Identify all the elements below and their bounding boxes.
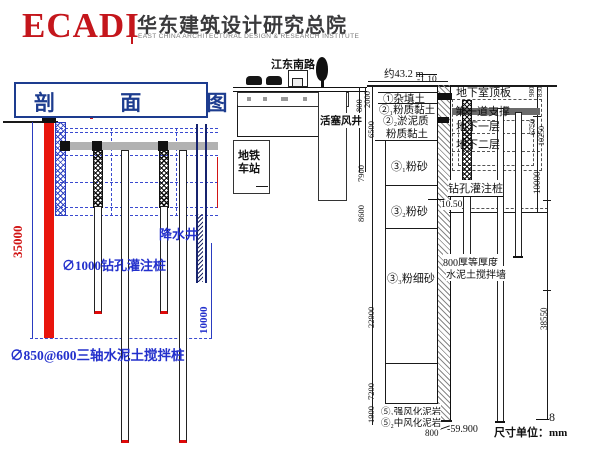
unit-note-label: 尺寸单位： xyxy=(494,427,549,439)
structure-dashed-line xyxy=(55,128,218,129)
road-name-label: 江东南路 xyxy=(271,56,315,72)
structure-dashed-line xyxy=(55,215,218,216)
mixing-pile-label: ∅850@600三轴水泥土搅拌桩 xyxy=(10,344,185,364)
elevation-strut: 10.50 xyxy=(441,200,462,210)
section-title: 剖 面 图 xyxy=(34,87,258,117)
bored-pile-hatched xyxy=(159,150,169,208)
dim-tick xyxy=(533,212,541,213)
right-dim-6750: 6750 xyxy=(528,103,537,135)
dim-text-10000-left: 10000 xyxy=(198,286,210,334)
pile-head-block xyxy=(158,141,168,151)
basement-roof-label: 地下室顶板 xyxy=(456,84,511,100)
slab-detail-square xyxy=(263,97,267,101)
section-title-box: 剖 面 图 xyxy=(14,82,208,118)
strut-end-block-geo xyxy=(437,117,449,123)
elevation-bottom: -59.900 xyxy=(447,424,478,435)
layer-label-5b: ⑤₂中风化泥岩 xyxy=(381,415,441,429)
deep-pile xyxy=(121,150,129,443)
soil-column-left-edge xyxy=(385,140,386,420)
tree-icon xyxy=(316,57,328,81)
car-icon xyxy=(266,76,282,85)
geo-dim-7900: 7900 xyxy=(356,148,366,182)
pile-toe-cap xyxy=(513,256,523,258)
dim-tick xyxy=(543,200,551,201)
basement-b1-label: 地下一层 xyxy=(456,118,500,134)
ecadi-logo: ECADI xyxy=(22,6,140,46)
layer-label-3b: ③₂粉砂 xyxy=(391,203,428,219)
dim-corner-mark xyxy=(536,419,549,420)
structure-dashed-line xyxy=(55,155,218,156)
layer-boundary xyxy=(385,185,437,186)
basement-b2-label: 地下二层 xyxy=(456,136,500,152)
geo-dim-800: 800 xyxy=(354,93,364,112)
right-dim-830: 830 xyxy=(536,80,544,97)
org-name-en: EAST CHINA ARCHITECTURAL DESIGN & RESEAR… xyxy=(138,33,359,40)
wall-thickness-800: 800 xyxy=(425,428,439,438)
geo-dim-1900: 1900 xyxy=(366,399,376,423)
structure-dashed-line xyxy=(55,132,218,133)
layer-label-3c: ③₃粉细砂 xyxy=(387,270,435,286)
geo-dim-22900: 22900 xyxy=(366,288,376,328)
slab-detail-square xyxy=(303,97,307,101)
right-dim-line-outer xyxy=(547,86,548,420)
right-dim-38550: 38550 xyxy=(539,290,549,330)
bored-pile-hatched xyxy=(93,150,103,208)
layer-label-2b2: 粉质黏土 xyxy=(386,126,428,141)
structure-dashed-line xyxy=(55,182,218,183)
bored-pile-label: ∅1000钻孔灌注桩 xyxy=(62,255,166,274)
dewatering-well-label: 降水井 xyxy=(159,224,198,243)
strut-end-block xyxy=(60,141,70,151)
wall-note-line2: 水泥土搅拌墙 xyxy=(446,266,506,281)
deep-pile xyxy=(179,150,187,443)
layer-boundary xyxy=(385,363,437,364)
piston-shaft-label: 活塞风井 xyxy=(320,113,362,128)
dim-line-35000 xyxy=(32,122,33,338)
strut-bar xyxy=(62,142,218,150)
car-icon xyxy=(246,76,262,85)
truck-icon-cab xyxy=(292,78,303,87)
layer-label-3a: ③₁粉砂 xyxy=(391,158,428,174)
pile-head-block xyxy=(92,141,102,151)
geo-dim-6500: 6500 xyxy=(366,108,376,138)
dim-line-10000-left xyxy=(211,243,212,338)
station-label-line2: 车站 xyxy=(238,160,260,176)
page-number: 8 xyxy=(549,410,555,425)
column-pile-shaft xyxy=(463,192,471,258)
geo-dim-7200: 7200 xyxy=(366,366,376,400)
tree-icon-trunk xyxy=(321,80,324,88)
right-dim-10250: 10250 xyxy=(537,100,546,146)
pile-toe-cap xyxy=(495,421,505,423)
right-dim-980: 980 xyxy=(528,80,536,97)
first-strut-label: 第一道支撑 xyxy=(455,103,510,119)
wall-cap-block xyxy=(437,93,452,100)
foundation-pile xyxy=(515,112,522,258)
diaphragm-wall-geo xyxy=(437,85,451,420)
elevation-top: -1.10 xyxy=(417,74,437,85)
station-step-line xyxy=(256,186,268,187)
layer-boundary xyxy=(385,228,437,229)
mixing-wall-red xyxy=(44,122,54,338)
right-dim-10000: 10000 xyxy=(532,150,542,194)
piston-shaft-box xyxy=(318,92,347,201)
diaphragm-wall-hatch xyxy=(55,122,66,216)
unit-note: 尺寸单位：mm xyxy=(494,424,567,440)
geo-dim-8600: 8600 xyxy=(356,188,366,222)
dim-line-red-right xyxy=(217,157,218,208)
unit-note-value: mm xyxy=(549,427,567,439)
slab-detail-square xyxy=(281,97,288,101)
bored-pile-label-geo: 钻孔灌注桩 xyxy=(448,180,503,197)
section-drawing-slide: ECADI 华东建筑设计研究总院 EAST CHINA ARCHITECTURA… xyxy=(0,0,600,450)
dim-text-35000: 35000 xyxy=(10,202,26,258)
station-floor-line xyxy=(237,136,318,137)
structure-dashed-line xyxy=(55,207,218,208)
